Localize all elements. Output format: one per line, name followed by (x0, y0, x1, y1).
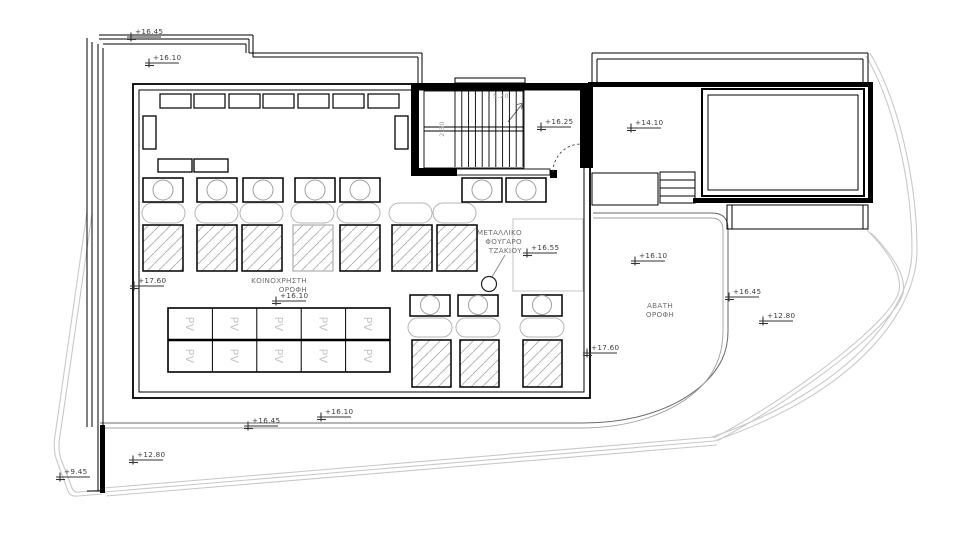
elev-chimney-plat-label: +16.55 (531, 243, 559, 252)
parapet-bar-bottom-left (100, 425, 105, 493)
landing-right (592, 173, 658, 205)
hvac-unit-box-6 (506, 178, 546, 202)
equip-small-1 (158, 159, 192, 172)
skylight-panel-lower-2 (523, 340, 562, 387)
label-inaccessible-roof-line-1: ΟΡΟΦΗ (646, 310, 674, 319)
stairwell-left-wall (411, 83, 419, 176)
stairwell-bottom-wall (411, 168, 457, 176)
label-stair-depth: 2.50 (438, 121, 446, 137)
hvac-unit-1 (197, 178, 237, 202)
skylight-panel-hatch-6 (437, 225, 477, 271)
hvac-unit-fan-icon-6 (516, 180, 536, 200)
pv-array: PVPVPVPVPVPVPVPVPVPV (168, 308, 390, 372)
site-boundary-right-a (714, 53, 917, 441)
hvac-unit-fan-icon-1 (207, 180, 227, 200)
terrace-bottom-wall (693, 198, 873, 203)
elev-bottom-mid: +16.10 (317, 407, 354, 422)
label-inaccessible-roof-line-0: ΑΒΑΤΗ (647, 301, 673, 310)
elev-low-roof-label: +12.80 (137, 450, 166, 459)
hvac-unit-5 (462, 178, 502, 202)
pv-panel-label-1-4: PV (361, 349, 374, 364)
hvac-unit-lower-fan-icon-0 (421, 296, 440, 315)
hvac-unit-2 (243, 178, 283, 202)
duct-pill-4 (337, 203, 380, 223)
vent-box-3 (263, 94, 294, 108)
stairwell-top-wall (411, 83, 593, 90)
label-common-roof-line-1: ΟΡΟΦΗ (279, 285, 307, 294)
equip-right-vert (395, 116, 408, 149)
hvac-unit-box-1 (197, 178, 237, 202)
pv-panel-label-0-2: PV (272, 317, 285, 332)
hvac-unit-lower-fan-icon-1 (469, 296, 488, 315)
skylight-panel-0 (143, 225, 183, 271)
hvac-unit-fan-icon-3 (305, 180, 325, 200)
elev-top-left-lower: +16.10 (145, 53, 182, 68)
equip-left-vert (143, 116, 156, 149)
elev-avati-roof: +16.10 (631, 251, 668, 266)
elev-right-edge-label: +16.45 (733, 287, 761, 296)
elev-left-parapet-label: +17.60 (138, 276, 167, 285)
pv-panel-label-1-3: PV (316, 349, 329, 364)
elev-top-left-upper-label: +16.45 (135, 27, 163, 36)
pv-panel-label-1-1: PV (228, 349, 241, 364)
skylight-panel-hatch-0 (143, 225, 183, 271)
roof-strip-right (727, 205, 868, 229)
hvac-unit-box-0 (143, 178, 183, 202)
stair-roof-rect (455, 78, 525, 83)
elev-left-parapet: +17.60 (130, 276, 167, 291)
skylight-panel-hatch-5 (392, 225, 432, 271)
stair-landing-edge (455, 169, 550, 175)
elev-avati-roof-label: +16.10 (639, 251, 668, 260)
skylight-outer (702, 89, 864, 196)
hvac-unit-4 (340, 178, 380, 202)
duct-pill-2 (240, 203, 283, 223)
elev-terrace: +14.10 (627, 118, 664, 133)
door-jamb-block (550, 170, 557, 178)
hvac-unit-box-3 (295, 178, 335, 202)
skylight-panel-lower-hatch-0 (412, 340, 451, 387)
elev-bottom-mid-label: +16.10 (325, 407, 354, 416)
vent-box-0 (160, 94, 191, 108)
skylight-panel-hatch-1 (197, 225, 237, 271)
hvac-unit-lower-fan-icon-2 (533, 296, 552, 315)
chimney-leader (492, 255, 505, 277)
skylight-panel-hatch-2 (242, 225, 282, 271)
duct-pill-3 (291, 203, 334, 223)
elev-right-parapet: +17.60 (583, 343, 620, 358)
hvac-unit-fan-icon-5 (472, 180, 492, 200)
skylight-panel-hatch-3 (293, 225, 333, 271)
skylight-panel-lower-0 (412, 340, 451, 387)
hvac-unit-6 (506, 178, 546, 202)
hvac-unit-lower-box-1 (458, 295, 498, 316)
duct-pill-lower-0 (408, 318, 452, 337)
site-bottom-b (104, 441, 714, 492)
skylight-inner (708, 95, 858, 190)
duct-pill-lower-2 (520, 318, 564, 337)
label-chimney-line-1: ΦΟΥΓΑΡΟ (485, 237, 522, 246)
chimney-flue-circle (482, 277, 497, 292)
hvac-unit-box-2 (243, 178, 283, 202)
site-bottom-c (106, 445, 717, 496)
elev-ground: +9.45 (56, 467, 90, 482)
elev-ground-label: +9.45 (64, 467, 88, 476)
skylight-panel-3 (293, 225, 333, 271)
skylight-panel-6 (437, 225, 477, 271)
vent-box-1 (194, 94, 225, 108)
elev-terrace-label: +14.10 (635, 118, 664, 127)
hvac-unit-lower-1 (458, 295, 498, 316)
duct-pill-6 (433, 203, 476, 223)
drawing-layers: PVPVPVPVPVPVPVPVPVPV+16.45+16.10+16.25+1… (54, 27, 917, 496)
stair-door-swing (553, 144, 581, 172)
elev-chimney-plat: +16.55 (523, 243, 559, 258)
pv-panel-label-0-3: PV (316, 317, 329, 332)
vent-box-2 (229, 94, 260, 108)
elev-bottom-left-label: +16.45 (252, 416, 280, 425)
elev-right-low: +12.80 (759, 311, 796, 326)
pv-panel-label-0-0: PV (183, 317, 196, 332)
label-common-roof-line-0: ΚΟΙΝΟΧΡΗΣΤΗ (251, 276, 307, 285)
hvac-unit-lower-box-0 (410, 295, 450, 316)
site-boundary-left-a (54, 212, 102, 496)
hvac-unit-box-4 (340, 178, 380, 202)
stair-arrow (508, 103, 523, 122)
label-chimney-line-0: ΜΕΤΑΛΛΙΚΟ (477, 228, 522, 237)
skylight-panel-lower-hatch-1 (460, 340, 499, 387)
skylight-panel-1 (197, 225, 237, 271)
hvac-unit-lower-box-2 (522, 295, 562, 316)
skylight-panel-hatch-4 (340, 225, 380, 271)
pv-panel-label-0-1: PV (228, 317, 241, 332)
hvac-unit-lower-2 (522, 295, 562, 316)
hvac-unit-fan-icon-2 (253, 180, 273, 200)
skylight-panel-lower-1 (460, 340, 499, 387)
label-chimney-line-2: ΤΖΑΚΙΟΥ (488, 246, 523, 255)
vent-box-4 (298, 94, 329, 108)
skylight-panel-lower-hatch-2 (523, 340, 562, 387)
duct-pill-5 (389, 203, 432, 223)
pv-panel-label-1-0: PV (183, 349, 196, 364)
elev-stair-landing: +16.25 (537, 117, 573, 132)
hvac-unit-3 (295, 178, 335, 202)
elev-top-left-lower-label: +16.10 (153, 53, 182, 62)
hvac-unit-box-5 (462, 178, 502, 202)
hvac-unit-lower-0 (410, 295, 450, 316)
skylight-panel-4 (340, 225, 380, 271)
stairwell-right-wall (580, 83, 593, 168)
duct-pill-1 (195, 203, 238, 223)
elev-right-edge: +16.45 (725, 287, 761, 302)
site-diagonal-b (717, 233, 904, 441)
site-bottom-a (104, 437, 714, 488)
vent-box-5 (333, 94, 364, 108)
skylight-panel-5 (392, 225, 432, 271)
elev-low-roof: +12.80 (129, 450, 166, 465)
pv-panel-label-1-2: PV (272, 349, 285, 364)
duct-pill-0 (142, 203, 185, 223)
pv-panel-label-0-4: PV (361, 317, 374, 332)
skylight-panel-2 (242, 225, 282, 271)
equip-small-2 (194, 159, 228, 172)
elev-stair-landing-label: +16.25 (545, 117, 573, 126)
label-stair-width: 5.20 (493, 92, 509, 100)
floor-plan-svg: PVPVPVPVPVPVPVPVPVPV+16.45+16.10+16.25+1… (0, 0, 980, 543)
hvac-unit-0 (143, 178, 183, 202)
hvac-unit-fan-icon-0 (153, 180, 173, 200)
terrace-top-wall (588, 82, 873, 87)
elev-right-parapet-label: +17.60 (591, 343, 620, 352)
duct-pill-lower-1 (456, 318, 500, 337)
vent-box-6 (368, 94, 399, 108)
terrace-right-wall (868, 82, 873, 203)
elev-right-low-label: +12.80 (767, 311, 796, 320)
floor-plan-page: PVPVPVPVPVPVPVPVPVPV+16.45+16.10+16.25+1… (0, 0, 980, 543)
hvac-unit-fan-icon-4 (350, 180, 370, 200)
